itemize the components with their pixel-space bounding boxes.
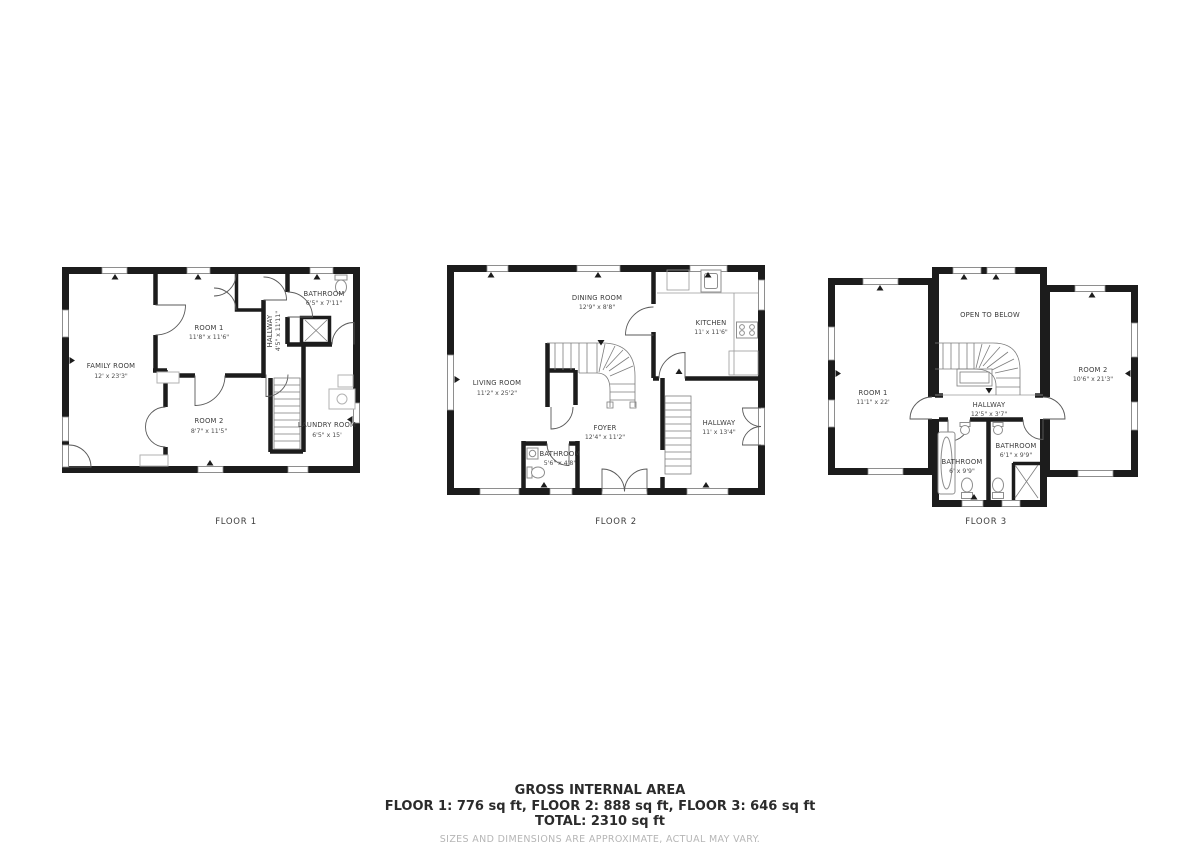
room-dims: 12'4" x 11'2" <box>585 434 625 441</box>
floor-3-plan: ROOM 1 11'1" x 22' OPEN TO BELOW ROOM 2 … <box>824 260 1142 508</box>
room-dims: 11'2" x 25'2" <box>477 390 517 397</box>
floor-3-labels: ROOM 1 11'1" x 22' OPEN TO BELOW ROOM 2 … <box>856 311 1113 475</box>
floor-2-caption: FLOOR 2 <box>516 517 716 527</box>
room-dims: 6' x 9'9" <box>949 468 975 475</box>
floor-2-plan: DINING ROOM 12'9" x 8'8" KITCHEN 11' x 1… <box>443 258 769 498</box>
floor-3-direction-markers <box>836 274 1131 500</box>
footer: GROSS INTERNAL AREA FLOOR 1: 776 sq ft, … <box>0 783 1200 847</box>
floor-3-windows <box>829 268 1138 507</box>
floor-3-caption: FLOOR 3 <box>886 517 1086 527</box>
room-dims: 5'6" x 4'8" <box>544 460 577 467</box>
room-dims: 12' x 23'3" <box>94 373 128 380</box>
floor-1-plan: FAMILY ROOM 12' x 23'3" ROOM 1 11'8" x 1… <box>58 259 364 477</box>
floorplan-page: FAMILY ROOM 12' x 23'3" ROOM 1 11'8" x 1… <box>0 0 1200 848</box>
room-dims: 11'1" x 22' <box>856 399 890 406</box>
room-name: HALLWAY <box>703 419 736 427</box>
footer-title: GROSS INTERNAL AREA <box>0 783 1200 799</box>
room-name: HALLWAY <box>266 314 274 347</box>
floor-1-labels: FAMILY ROOM 12' x 23'3" ROOM 1 11'8" x 1… <box>87 290 356 439</box>
room-dims: 10'6" x 21'3" <box>1073 376 1113 383</box>
room-name: LIVING ROOM <box>473 379 521 387</box>
room-name: ROOM 2 <box>1079 366 1108 374</box>
room-name: BATHROOM <box>996 442 1037 450</box>
footer-total: TOTAL: 2310 sq ft <box>0 814 1200 830</box>
room-name: BATHROOM <box>304 290 345 298</box>
room-dims: 6'5" x 15' <box>312 432 342 439</box>
room-dims: 6'1" x 9'9" <box>1000 452 1033 459</box>
floor-3-stairs <box>935 343 1020 395</box>
footer-disclaimer: SIZES AND DIMENSIONS ARE APPROXIMATE, AC… <box>0 832 1200 848</box>
floor-1-caption: FLOOR 1 <box>136 517 336 527</box>
room-dims: 11' x 13'4" <box>702 429 736 436</box>
room-dims: 12'5" x 3'7" <box>971 411 1008 418</box>
room-dims: 4'5" x 11'11" <box>275 311 282 351</box>
room-name: ROOM 1 <box>195 324 224 332</box>
room-dims: 11' x 11'6" <box>694 329 728 336</box>
room-name: LAUNDRY ROOM <box>298 421 356 429</box>
room-name: ROOM 2 <box>195 417 224 425</box>
room-name: ROOM 1 <box>859 389 888 397</box>
room-name: DINING ROOM <box>572 294 622 302</box>
room-name: HALLWAY <box>973 401 1006 409</box>
room-name: BATHROOM <box>942 458 983 466</box>
floor-1-windows <box>63 268 360 473</box>
room-name: FAMILY ROOM <box>87 362 136 370</box>
floor-1-stairs <box>274 378 300 449</box>
room-dims: 11'8" x 11'6" <box>189 334 229 341</box>
room-name: BATHROOM <box>540 450 581 458</box>
room-dims: 12'9" x 8'8" <box>579 304 616 311</box>
room-name: OPEN TO BELOW <box>960 311 1020 319</box>
room-name: FOYER <box>593 424 616 432</box>
room-name: KITCHEN <box>696 319 727 327</box>
room-dims: 8'7" x 11'5" <box>191 428 228 435</box>
floor-2-fixtures <box>527 270 758 478</box>
footer-floor-areas: FLOOR 1: 776 sq ft, FLOOR 2: 888 sq ft, … <box>0 799 1200 815</box>
room-dims: 6'5" x 7'11" <box>306 300 343 307</box>
